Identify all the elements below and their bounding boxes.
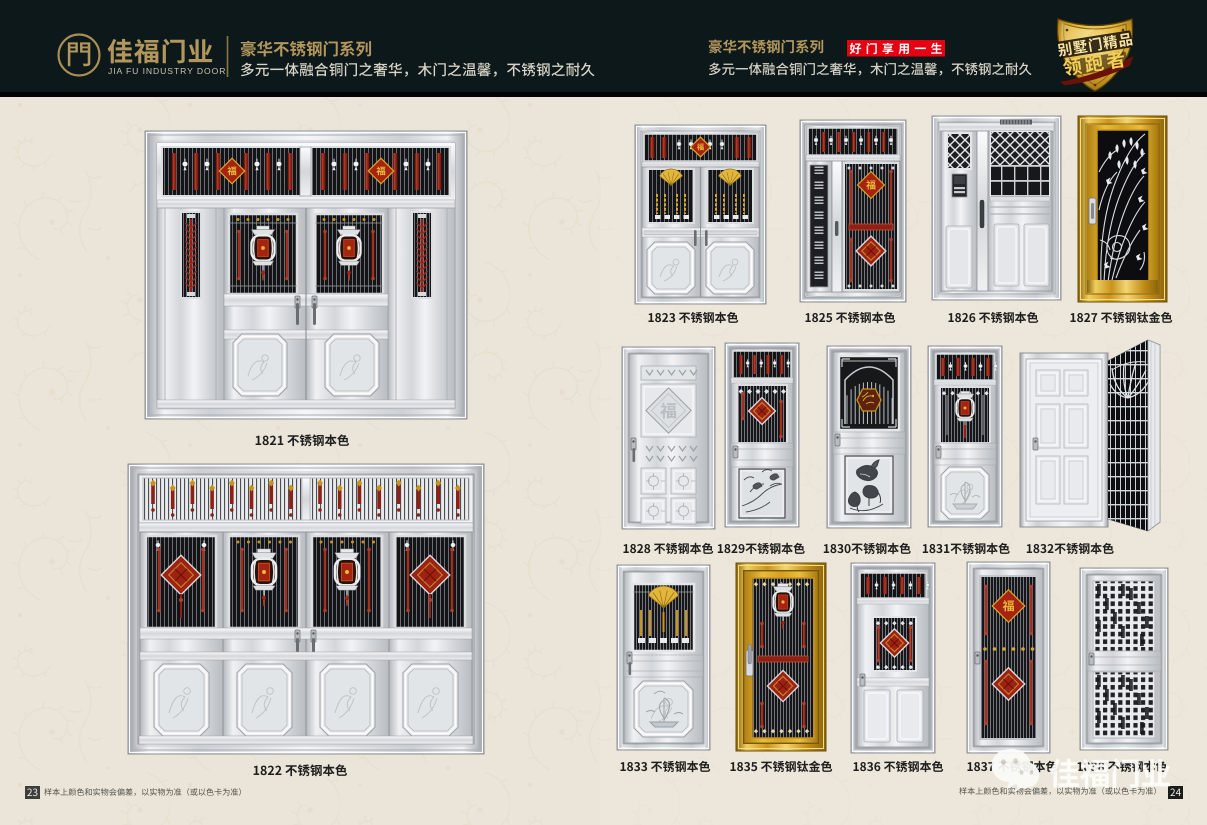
- svg-text:JIA FU INDUSTRY DOOR: JIA FU INDUSTRY DOOR: [108, 66, 226, 76]
